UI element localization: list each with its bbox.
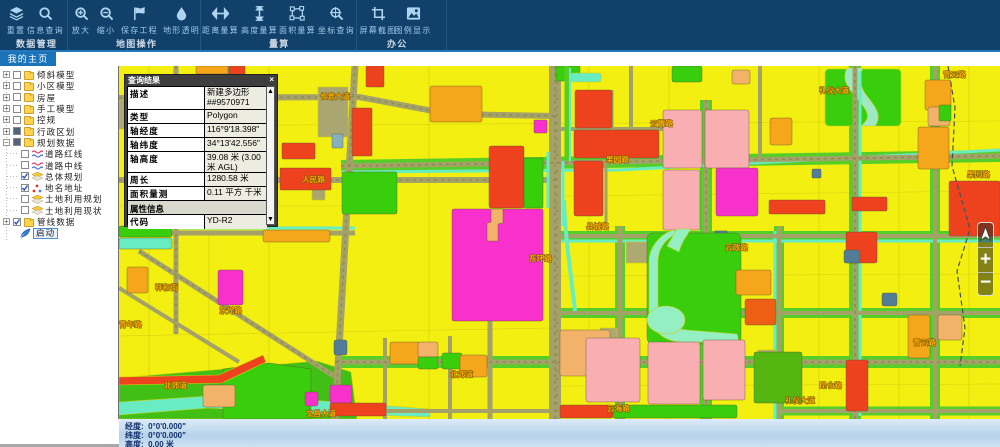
svg-text:果园路: 果园路 xyxy=(606,154,630,164)
svg-text:北郊道: 北郊道 xyxy=(164,380,188,390)
svg-text:县城路: 县城路 xyxy=(586,221,610,231)
svg-text:祥和街: 祥和街 xyxy=(155,282,179,292)
svg-text:东光路: 东光路 xyxy=(219,305,243,315)
svg-text:青年路: 青年路 xyxy=(119,319,143,329)
svg-text:云政路: 云政路 xyxy=(725,242,749,252)
svg-text:礼仪大道: 礼仪大道 xyxy=(785,395,815,405)
svg-text:果园路: 果园路 xyxy=(967,169,991,179)
svg-text:青云路: 青云路 xyxy=(913,337,937,347)
svg-text:青云路: 青云路 xyxy=(943,69,967,79)
svg-text:人民路: 人民路 xyxy=(302,174,326,184)
svg-text:云海路: 云海路 xyxy=(607,403,631,413)
svg-text:文昌大道: 文昌大道 xyxy=(306,408,336,418)
svg-text:长寿大道: 长寿大道 xyxy=(320,91,350,101)
svg-text:北郊道: 北郊道 xyxy=(450,369,474,379)
svg-text:云霄路: 云霄路 xyxy=(650,118,674,128)
svg-text:昆仑路: 昆仑路 xyxy=(819,380,843,390)
svg-text:礼仪大道: 礼仪大道 xyxy=(819,85,849,95)
svg-text:东环路: 东环路 xyxy=(529,253,553,263)
